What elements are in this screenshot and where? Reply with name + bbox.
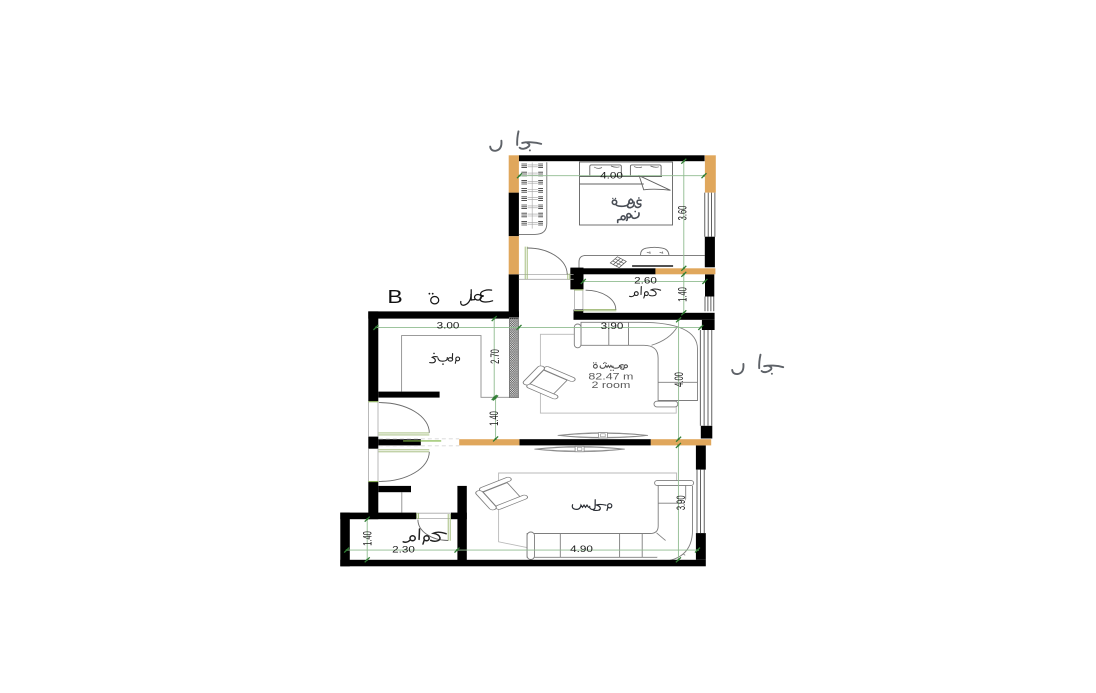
svg-text:1.40: 1.40 [489, 411, 502, 426]
svg-text:4.90: 4.90 [570, 545, 593, 554]
svg-text:2.30: 2.30 [392, 546, 415, 555]
svg-text:4.00: 4.00 [600, 172, 623, 181]
svg-text:2.70: 2.70 [490, 349, 503, 364]
svg-text:1.40: 1.40 [677, 287, 690, 302]
svg-text:2.60: 2.60 [634, 277, 657, 286]
svg-text:B: B [387, 287, 402, 307]
svg-text:4.00: 4.00 [673, 372, 686, 387]
svg-text:3.60: 3.60 [677, 205, 690, 220]
svg-text:3.90: 3.90 [676, 495, 689, 510]
svg-text:1.40: 1.40 [362, 531, 375, 546]
svg-text:3.90: 3.90 [601, 322, 624, 331]
svg-text:2 room: 2 room [591, 381, 630, 391]
svg-text:3.00: 3.00 [437, 322, 460, 331]
